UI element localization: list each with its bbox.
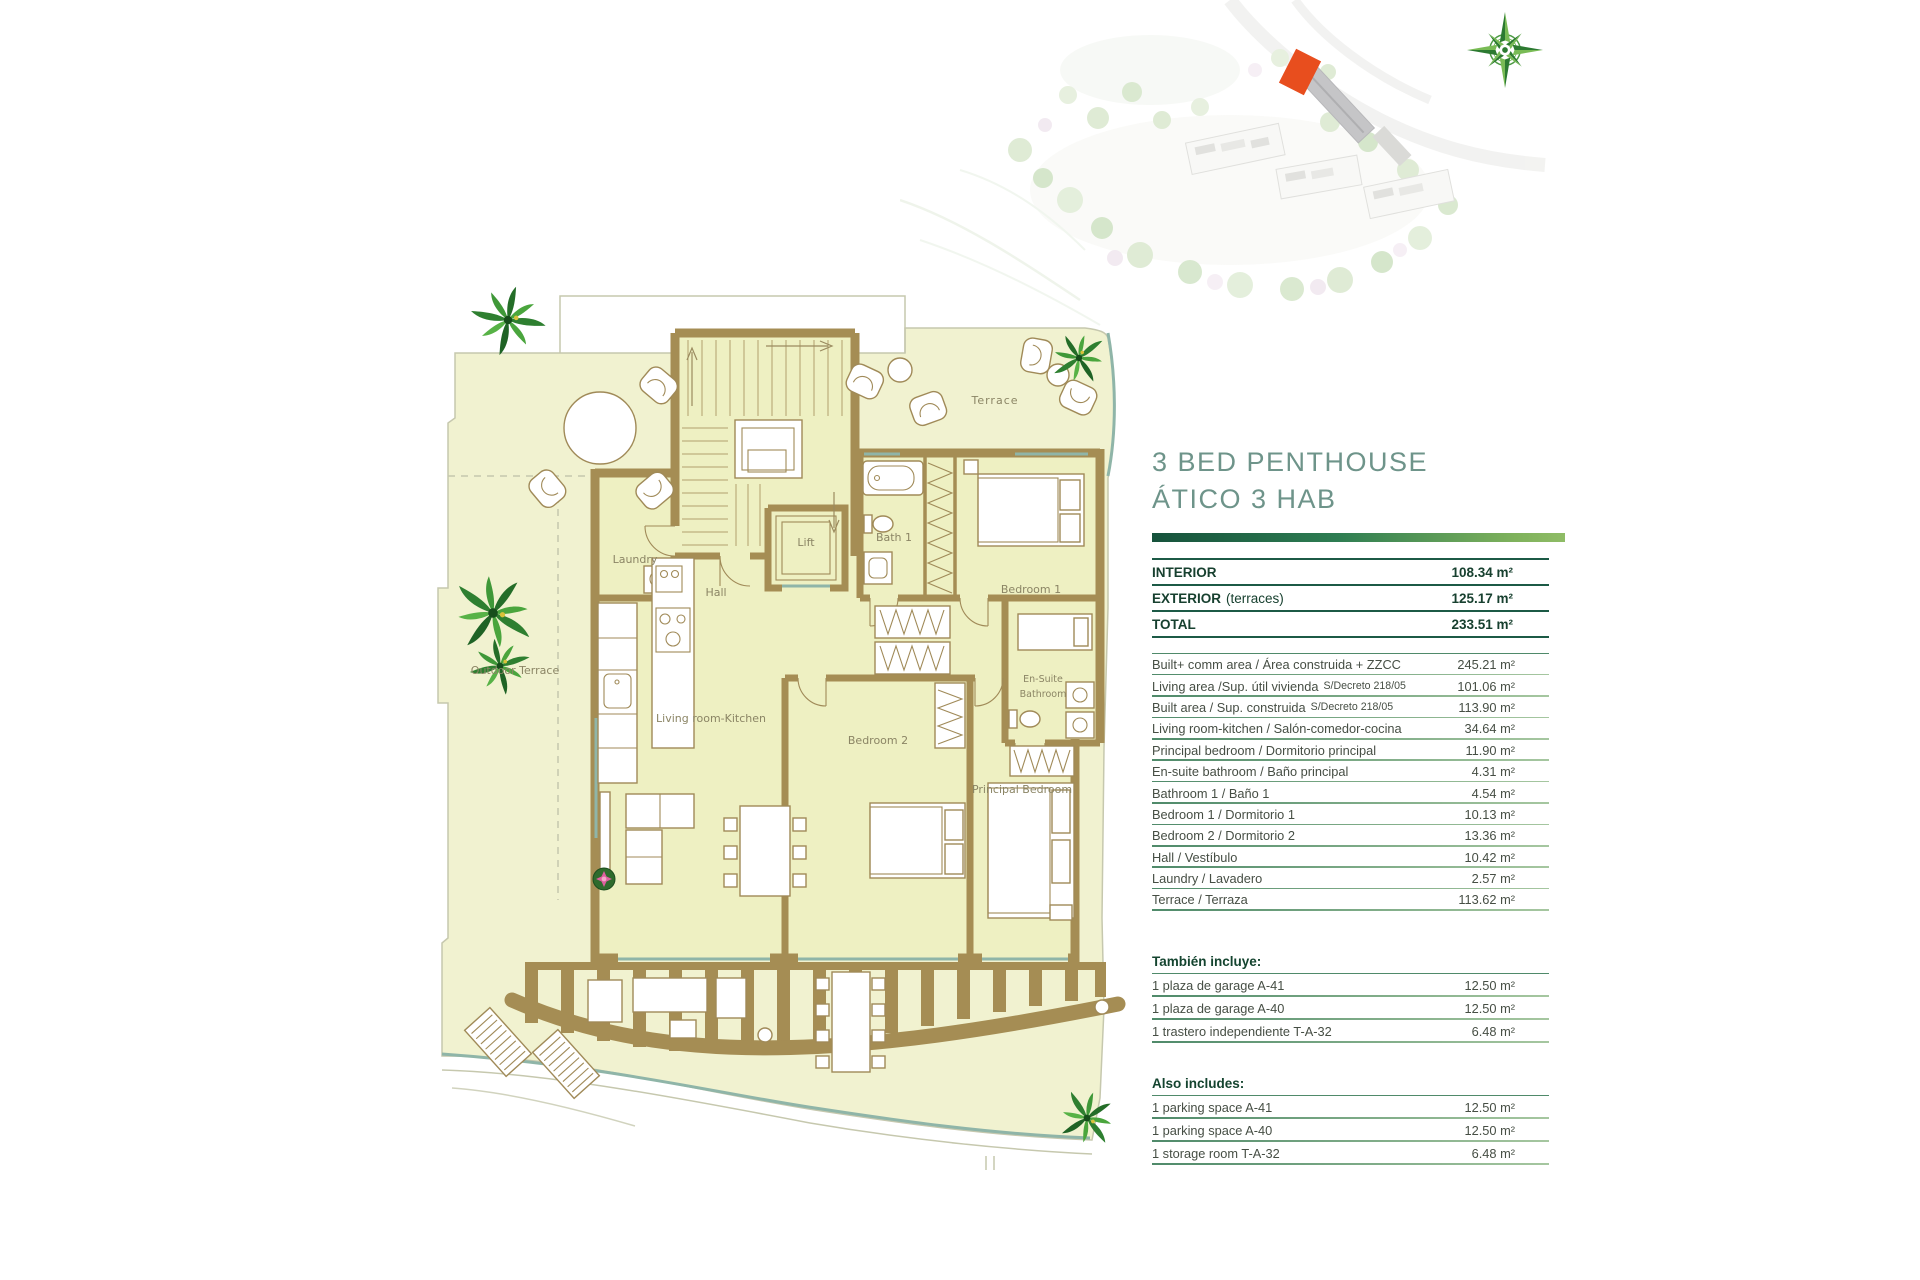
area-value: 101.06 m² — [1457, 679, 1549, 694]
summary-row-interior: INTERIOR 108.34 m² — [1152, 558, 1549, 584]
room-label-laundry: Laundry — [613, 553, 658, 566]
room-label-ensuite-1: En-Suite — [1023, 674, 1063, 685]
include-row: 1 storage room T-A-32 6.48 m² — [1152, 1142, 1549, 1165]
area-row: Bathroom 1 / Baño 1 4.54 m² — [1152, 782, 1549, 803]
area-label: Built area / Sup. construida — [1152, 700, 1306, 715]
include-row: 1 trastero independiente T-A-32 6.48 m² — [1152, 1020, 1549, 1043]
area-value: 4.54 m² — [1472, 786, 1549, 801]
summary-value: 125.17 m² — [1451, 591, 1549, 606]
tambien-heading: También incluye: — [1152, 945, 1549, 973]
tambien-table: 1 plaza de garage A-41 12.50 m² 1 plaza … — [1152, 973, 1549, 1043]
area-value: 34.64 m² — [1464, 721, 1549, 736]
area-row: Bedroom 2 / Dormitorio 2 13.36 m² — [1152, 825, 1549, 846]
area-label: Living room-kitchen / Salón-comedor-coci… — [1152, 721, 1402, 736]
include-row: 1 plaza de garage A-41 12.50 m² — [1152, 974, 1549, 997]
site-rendering — [900, 0, 1545, 325]
brochure-page: Terrace Laundry Hall Lift Bath 1 Bedroom… — [0, 0, 1920, 1280]
floor-plan-svg: Terrace Laundry Hall Lift Bath 1 Bedroom… — [430, 278, 1130, 1170]
area-value: 245.21 m² — [1457, 657, 1549, 672]
title-line-1: 3 BED PENTHOUSE — [1152, 444, 1565, 481]
room-label-hall: Hall — [705, 586, 726, 599]
area-value: 2.57 m² — [1472, 871, 1549, 886]
area-row: Living room-kitchen / Salón-comedor-coci… — [1152, 718, 1549, 739]
summary-row-exterior: EXTERIOR (terraces) 125.17 m² — [1152, 584, 1549, 610]
summary-value: 233.51 m² — [1451, 617, 1549, 632]
areas-table: Built+ comm area / Área construida + ZZC… — [1152, 653, 1549, 911]
area-label: Bedroom 1 / Dormitorio 1 — [1152, 807, 1295, 822]
room-label-outdoor: Outdoor Terrace — [471, 664, 560, 677]
area-label-small: S/Decreto 218/05 — [1311, 701, 1393, 713]
area-row: En-suite bathroom / Baño principal 4.31 … — [1152, 761, 1549, 782]
room-label-principal: Principal Bedroom — [972, 783, 1072, 796]
room-label-bath1: Bath 1 — [876, 531, 912, 544]
include-label: 1 plaza de garage A-41 — [1152, 978, 1284, 993]
area-value: 4.31 m² — [1472, 764, 1549, 779]
area-label: Principal bedroom / Dormitorio principal — [1152, 743, 1376, 758]
summary-label: EXTERIOR — [1152, 591, 1221, 606]
area-label: Hall / Vestíbulo — [1152, 850, 1237, 865]
area-row: Hall / Vestíbulo 10.42 m² — [1152, 847, 1549, 868]
also-table: 1 parking space A-41 12.50 m² 1 parking … — [1152, 1095, 1549, 1165]
area-label: Terrace / Terraza — [1152, 892, 1248, 907]
include-label: 1 parking space A-41 — [1152, 1100, 1272, 1115]
include-label: 1 plaza de garage A-40 — [1152, 1001, 1284, 1016]
area-label: Laundry / Lavadero — [1152, 871, 1262, 886]
page-title: 3 BED PENTHOUSE ÁTICO 3 HAB — [1152, 444, 1565, 518]
summary-value: 108.34 m² — [1451, 565, 1549, 580]
include-value: 12.50 m² — [1464, 978, 1549, 993]
include-value: 6.48 m² — [1472, 1024, 1549, 1039]
room-label-ensuite-2: Bathroom — [1020, 689, 1067, 700]
include-label: 1 storage room T-A-32 — [1152, 1146, 1280, 1161]
room-label-terrace: Terrace — [970, 394, 1018, 407]
area-row: Principal bedroom / Dormitorio principal… — [1152, 740, 1549, 761]
unit-info-panel: 3 BED PENTHOUSE ÁTICO 3 HAB INTERIOR 108… — [1152, 444, 1565, 1165]
area-row: Built area / Sup. construida S/Decreto 2… — [1152, 697, 1549, 718]
palm-tree-icon — [462, 278, 554, 365]
area-label: Bedroom 2 / Dormitorio 2 — [1152, 828, 1295, 843]
room-label-bedroom2: Bedroom 2 — [848, 734, 908, 747]
include-label: 1 trastero independiente T-A-32 — [1152, 1024, 1332, 1039]
area-row: Terrace / Terraza 113.62 m² — [1152, 889, 1549, 910]
area-value: 10.13 m² — [1464, 807, 1549, 822]
area-label: Living area /Sup. útil vivienda — [1152, 679, 1318, 694]
accent-gradient-bar — [1152, 533, 1565, 542]
area-value: 13.36 m² — [1464, 828, 1549, 843]
summary-note: (terraces) — [1226, 591, 1284, 606]
area-label: Bathroom 1 / Baño 1 — [1152, 786, 1269, 801]
area-value: 10.42 m² — [1464, 850, 1549, 865]
include-label: 1 parking space A-40 — [1152, 1123, 1272, 1138]
summary-table: INTERIOR 108.34 m² EXTERIOR (terraces) 1… — [1152, 558, 1549, 638]
summary-label: INTERIOR — [1152, 565, 1217, 580]
include-value: 12.50 m² — [1464, 1100, 1549, 1115]
room-label-lift: Lift — [797, 536, 815, 549]
floor-plan: Terrace Laundry Hall Lift Bath 1 Bedroom… — [430, 278, 1130, 1170]
also-heading: Also includes: — [1152, 1067, 1549, 1095]
include-value: 12.50 m² — [1464, 1001, 1549, 1016]
area-row: Laundry / Lavadero 2.57 m² — [1152, 868, 1549, 889]
room-label-bedroom1: Bedroom 1 — [1001, 583, 1061, 596]
area-label: Built+ comm area / Área construida + ZZC… — [1152, 657, 1401, 672]
include-value: 12.50 m² — [1464, 1123, 1549, 1138]
summary-row-total: TOTAL 233.51 m² — [1152, 610, 1549, 636]
area-row: Living area /Sup. útil vivienda S/Decret… — [1152, 675, 1549, 696]
include-value: 6.48 m² — [1472, 1146, 1549, 1161]
summary-label: TOTAL — [1152, 617, 1196, 632]
include-row: 1 parking space A-41 12.50 m² — [1152, 1096, 1549, 1119]
area-row: Bedroom 1 / Dormitorio 1 10.13 m² — [1152, 804, 1549, 825]
area-label-small: S/Decreto 218/05 — [1323, 680, 1405, 692]
include-row: 1 plaza de garage A-40 12.50 m² — [1152, 997, 1549, 1020]
include-row: 1 parking space A-40 12.50 m² — [1152, 1119, 1549, 1142]
title-line-2: ÁTICO 3 HAB — [1152, 481, 1565, 518]
area-value: 113.90 m² — [1458, 700, 1549, 715]
compass-icon — [1467, 12, 1543, 88]
area-value: 113.62 m² — [1458, 892, 1549, 907]
area-row: Built+ comm area / Área construida + ZZC… — [1152, 654, 1549, 675]
area-label: En-suite bathroom / Baño principal — [1152, 764, 1348, 779]
room-label-living: Living room-Kitchen — [656, 712, 766, 725]
area-value: 11.90 m² — [1465, 743, 1549, 758]
potted-plant-icon — [593, 868, 615, 890]
